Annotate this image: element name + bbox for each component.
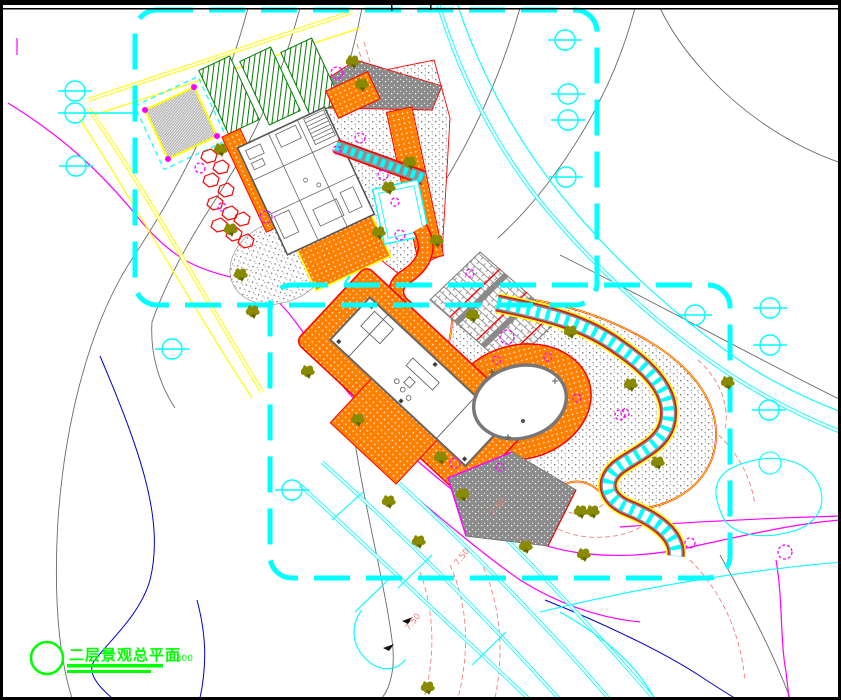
title-underline-1 (67, 664, 163, 668)
drawing-sheet: 7.50 7.50 7.50 二层景观总平面 1:300 (0, 0, 841, 700)
drawing-scale: 1:300 (167, 654, 193, 664)
spot-elevation: 7.50 (403, 612, 423, 633)
title-bubble-icon (31, 642, 63, 674)
site-plan: 7.50 7.50 7.50 二层景观总平面 1:300 (0, 0, 841, 700)
title-block: 二层景观总平面 1:300 (31, 642, 193, 674)
central-complex (295, 228, 716, 556)
drawing-title: 二层景观总平面 (69, 646, 181, 664)
title-underline-2 (67, 670, 151, 673)
